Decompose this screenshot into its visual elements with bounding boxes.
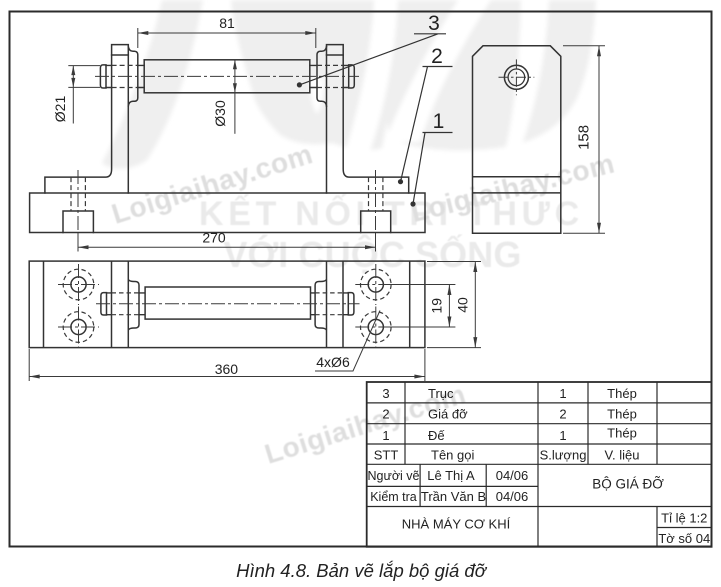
svg-text:NHÀ MÁY CƠ KHÍ: NHÀ MÁY CƠ KHÍ — [402, 517, 511, 532]
svg-text:40: 40 — [454, 297, 470, 313]
svg-text:Trần Văn B: Trần Văn B — [421, 489, 486, 504]
svg-text:04/06: 04/06 — [496, 489, 529, 504]
svg-text:19: 19 — [429, 298, 445, 314]
svg-text:1: 1 — [559, 386, 566, 401]
svg-text:S.lượng: S.lượng — [540, 448, 587, 463]
svg-text:3: 3 — [382, 386, 389, 401]
svg-text:4xØ6: 4xØ6 — [316, 354, 350, 370]
svg-text:270: 270 — [202, 230, 226, 246]
svg-text:Đế: Đế — [428, 428, 445, 443]
svg-text:Ø21: Ø21 — [52, 96, 68, 123]
svg-text:Thép: Thép — [607, 426, 637, 441]
svg-text:04/06: 04/06 — [496, 468, 529, 483]
svg-text:3: 3 — [428, 12, 440, 35]
svg-text:VỚI CUỘC SỐNG: VỚI CUỘC SỐNG — [223, 233, 521, 275]
svg-text:V. liệu: V. liệu — [605, 448, 640, 463]
svg-text:Người vẽ: Người vẽ — [368, 469, 420, 483]
svg-text:360: 360 — [215, 361, 239, 377]
svg-text:2: 2 — [382, 407, 389, 422]
svg-text:Tên gọi: Tên gọi — [431, 448, 474, 463]
svg-text:Ø30: Ø30 — [212, 100, 228, 127]
svg-text:Kiểm tra: Kiểm tra — [370, 490, 417, 504]
svg-text:Lê Thị A: Lê Thị A — [427, 468, 475, 483]
svg-text:Thép: Thép — [607, 407, 637, 422]
svg-text:1: 1 — [559, 428, 566, 443]
svg-text:1: 1 — [382, 428, 389, 443]
svg-text:158: 158 — [576, 125, 593, 150]
svg-text:STT: STT — [374, 448, 399, 463]
svg-text:Tờ số 04: Tờ số 04 — [658, 531, 710, 546]
svg-text:2: 2 — [431, 45, 443, 68]
svg-text:81: 81 — [219, 15, 235, 31]
svg-text:1: 1 — [433, 110, 445, 133]
svg-text:BỘ GIÁ ĐỠ: BỘ GIÁ ĐỠ — [592, 477, 664, 492]
svg-text:Tỉ lệ 1:2: Tỉ lệ 1:2 — [661, 511, 707, 526]
svg-text:Hình 4.8. Bản vẽ lắp bộ giá đỡ: Hình 4.8. Bản vẽ lắp bộ giá đỡ — [236, 560, 488, 581]
svg-text:Thép: Thép — [607, 386, 637, 401]
svg-text:Trục: Trục — [428, 386, 454, 401]
svg-text:Giá đỡ: Giá đỡ — [428, 407, 468, 422]
svg-text:2: 2 — [559, 407, 566, 422]
